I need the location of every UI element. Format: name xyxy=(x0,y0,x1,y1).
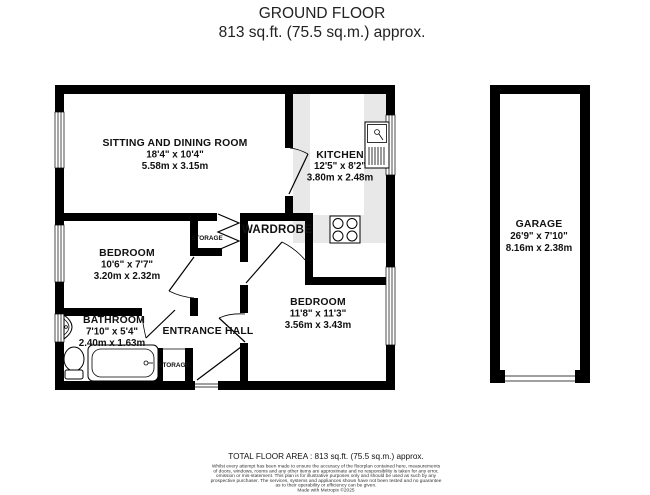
label-bathroom: BATHROOM 7'10" x 5'4" 2.40m x 1.63m xyxy=(79,315,146,349)
bathtub xyxy=(88,345,158,381)
label-sitting-dining: SITTING AND DINING ROOM 18'4" x 10'4" 5.… xyxy=(102,138,247,172)
svg-text:10'6" x 7'7": 10'6" x 7'7" xyxy=(101,260,153,271)
wardrobe-door xyxy=(246,242,305,283)
svg-text:3.20m x 2.32m: 3.20m x 2.32m xyxy=(94,271,161,282)
window-sitting-left xyxy=(55,112,64,168)
label-kitchen: KITCHEN 12'5" x 8'2" 3.80m x 2.48m xyxy=(307,150,374,184)
svg-text:SITTING AND DINING ROOM: SITTING AND DINING ROOM xyxy=(102,138,247,149)
garage-door xyxy=(505,376,575,381)
credit-line: Made with Metropix ©2025 xyxy=(297,487,354,494)
window-bedroom1-left xyxy=(55,225,64,282)
svg-text:8.16m x 2.38m: 8.16m x 2.38m xyxy=(506,243,573,254)
window-bedroom2-right xyxy=(386,267,395,345)
kitchen-hob xyxy=(330,216,360,243)
window-bathroom-left xyxy=(55,314,64,342)
doors xyxy=(142,148,308,387)
label-storage-hall: STORAGE xyxy=(158,362,190,369)
svg-text:7'10" x 5'4": 7'10" x 5'4" xyxy=(86,327,138,338)
toilet xyxy=(64,347,84,379)
label-bedroom2: BEDROOM 11'8" x 11'3" 3.56m x 3.43m xyxy=(285,297,352,331)
svg-text:11'8" x 11'3": 11'8" x 11'3" xyxy=(290,309,346,320)
total-floor-area: TOTAL FLOOR AREA : 813 sq.ft. (75.5 sq.m… xyxy=(228,452,424,461)
label-bedroom1: BEDROOM 10'6" x 7'7" 3.20m x 2.32m xyxy=(94,248,161,282)
svg-text:3.56m x 3.43m: 3.56m x 3.43m xyxy=(285,320,352,331)
label-garage: GARAGE 26'9" x 7'10" 8.16m x 2.38m xyxy=(506,219,573,254)
floorplan-page: GROUND FLOOR 813 sq.ft. (75.5 sq.m.) app… xyxy=(0,0,650,495)
storage-bifold-door xyxy=(218,214,239,250)
label-entrance-hall: ENTRANCE HALL xyxy=(163,326,254,337)
svg-text:2.40m x 1.63m: 2.40m x 1.63m xyxy=(79,338,146,349)
svg-text:3.80m x 2.48m: 3.80m x 2.48m xyxy=(307,173,374,184)
label-wardrobe: WARDROBE xyxy=(242,224,312,236)
label-storage-closet: STORAGE xyxy=(191,235,223,242)
floorplan-canvas: GROUND FLOOR 813 sq.ft. (75.5 sq.m.) app… xyxy=(0,0,650,495)
svg-text:BEDROOM: BEDROOM xyxy=(99,248,155,259)
bedroom1-door xyxy=(169,257,194,298)
kitchen-sink xyxy=(365,122,389,168)
svg-text:BATHROOM: BATHROOM xyxy=(83,315,145,326)
svg-text:12'5" x 8'2": 12'5" x 8'2" xyxy=(314,161,366,172)
page-subtitle: 813 sq.ft. (75.5 sq.m.) approx. xyxy=(219,24,426,41)
svg-text:26'9" x 7'10": 26'9" x 7'10" xyxy=(510,231,568,242)
svg-text:BEDROOM: BEDROOM xyxy=(290,297,346,308)
footer: TOTAL FLOOR AREA : 813 sq.ft. (75.5 sq.m… xyxy=(211,452,442,494)
svg-text:18'4" x 10'4": 18'4" x 10'4" xyxy=(146,150,204,161)
svg-text:GARAGE: GARAGE xyxy=(516,219,563,230)
svg-text:KITCHEN: KITCHEN xyxy=(316,150,364,161)
page-title: GROUND FLOOR xyxy=(259,5,386,22)
svg-text:5.58m x 3.15m: 5.58m x 3.15m xyxy=(142,161,209,172)
bathroom-basin xyxy=(64,315,72,339)
